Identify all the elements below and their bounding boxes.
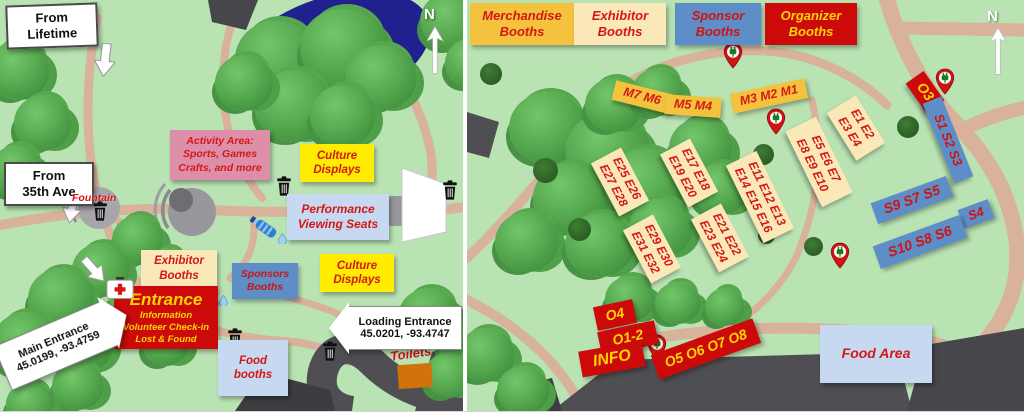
north-arrow-icon (426, 24, 444, 76)
north-label: N (987, 8, 998, 25)
legend-organizer-booths: Organizer Booths (765, 3, 857, 45)
legend-merchandise-booths: Merchandise Booths (470, 3, 574, 45)
tree (310, 85, 376, 147)
activity-area-label: Activity Area: Sports, Games Crafts, and… (170, 130, 270, 180)
from-lifetime-label: From Lifetime (5, 2, 98, 49)
booth-o5-o8: O5 O6 O7 O8 (651, 318, 761, 379)
bush (897, 116, 919, 138)
booth-s10-s8-s6: S10 S8 S6 (873, 215, 968, 269)
tree (497, 366, 549, 411)
event-map: N From Lifetime From 35th Ave Activity A… (0, 0, 1024, 412)
booth-s9-s7-s5: S9 S7 S5 (871, 176, 954, 224)
trash-icon (276, 176, 292, 196)
booth-e21-e24: E21 E22 E23 E24 (691, 204, 749, 273)
culture-displays-label: Culture Displays (320, 254, 394, 292)
tree (655, 282, 701, 324)
arrow-head (329, 302, 349, 354)
water-bottle-icon (247, 212, 280, 241)
legend-exhibitor-booths: Exhibitor Booths (574, 3, 666, 45)
water-droplet-icon (278, 233, 287, 244)
fountain-label: Fountain (72, 192, 116, 204)
booth-detail-panel: Merchandise Booths Exhibitor Booths Spon… (467, 0, 1024, 411)
power-pin-icon (830, 242, 850, 269)
culture-displays-label: Culture Displays (300, 144, 374, 182)
tree (705, 288, 745, 326)
north-arrow-icon (989, 26, 1007, 76)
bush (480, 63, 502, 85)
booth-m5-m4: M5 M4 (664, 94, 721, 118)
power-pin-icon (723, 42, 743, 69)
exhibitor-booths-label: Exhibitor Booths (141, 250, 217, 287)
trash-icon (442, 180, 458, 200)
bush (533, 158, 558, 183)
food-area-label: Food Area (820, 325, 932, 383)
loading-entrance-arrow: Loading Entrance 45.0201, -93.4747 (348, 306, 462, 350)
food-booths-label: Food booths (218, 340, 288, 396)
booth-info: INFO (578, 341, 646, 378)
performance-seats-label: Performance Viewing Seats (287, 194, 389, 240)
bush (568, 218, 591, 241)
legend-sponsor-booths: Sponsor Booths (675, 3, 761, 45)
booth-e1-e4: E1 E2 E3 E4 (827, 95, 886, 161)
north-label: N (424, 6, 435, 23)
booth-s4: S4 (958, 199, 995, 229)
tree (14, 95, 72, 151)
tree (215, 55, 273, 111)
entrance-title: Entrance (130, 289, 203, 310)
bush (804, 237, 823, 256)
booth-s1-s3: S1 S2 S3 (923, 96, 974, 183)
water-droplet-icon (219, 295, 228, 306)
trash-icon (92, 201, 108, 221)
park-overview-panel: N From Lifetime From 35th Ave Activity A… (0, 0, 463, 411)
sponsors-booths-label: Sponsors Booths (232, 263, 298, 299)
power-pin-icon (766, 108, 786, 135)
toilet-building (397, 363, 433, 389)
tree (495, 212, 559, 272)
direction-arrow-icon (92, 42, 117, 78)
